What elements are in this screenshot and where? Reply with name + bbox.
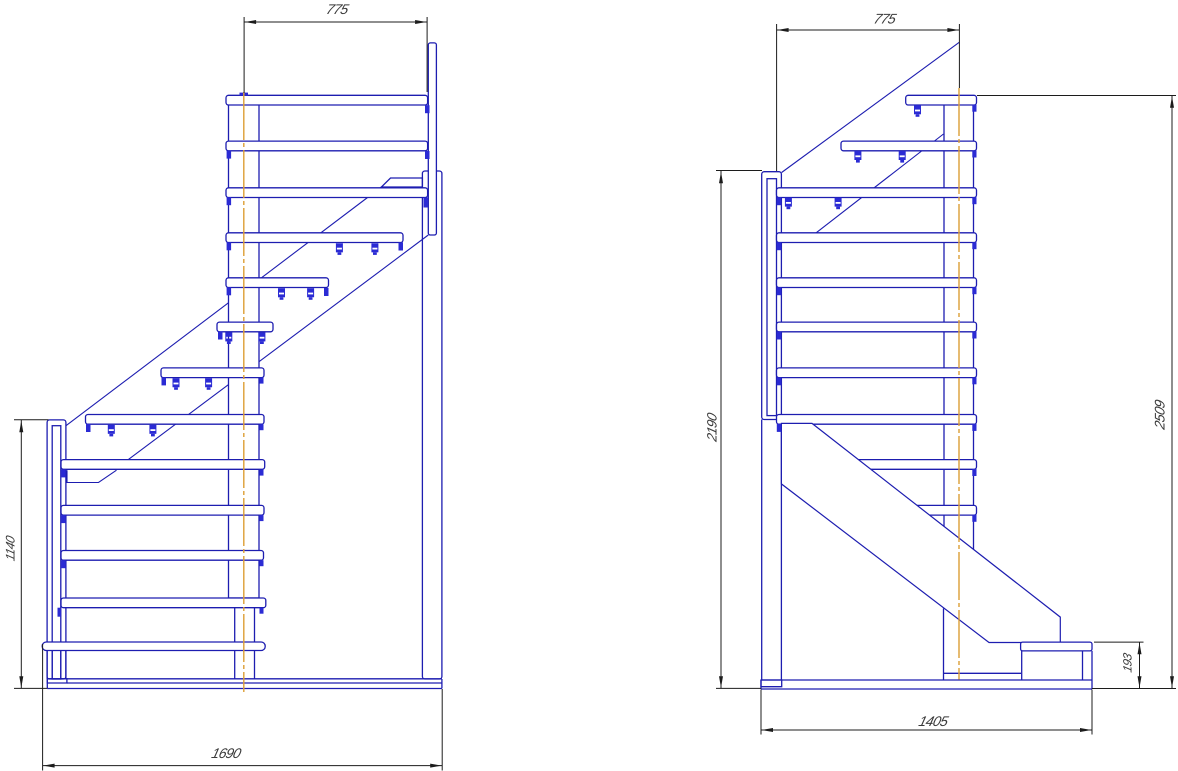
- svg-text:2509: 2509: [1153, 398, 1169, 432]
- svg-text:1140: 1140: [4, 534, 18, 562]
- svg-text:775: 775: [324, 2, 350, 18]
- svg-text:193: 193: [1121, 651, 1135, 673]
- svg-text:1405: 1405: [917, 714, 950, 730]
- svg-text:2190: 2190: [705, 411, 720, 444]
- svg-text:1690: 1690: [210, 746, 243, 762]
- svg-text:775: 775: [872, 11, 898, 27]
